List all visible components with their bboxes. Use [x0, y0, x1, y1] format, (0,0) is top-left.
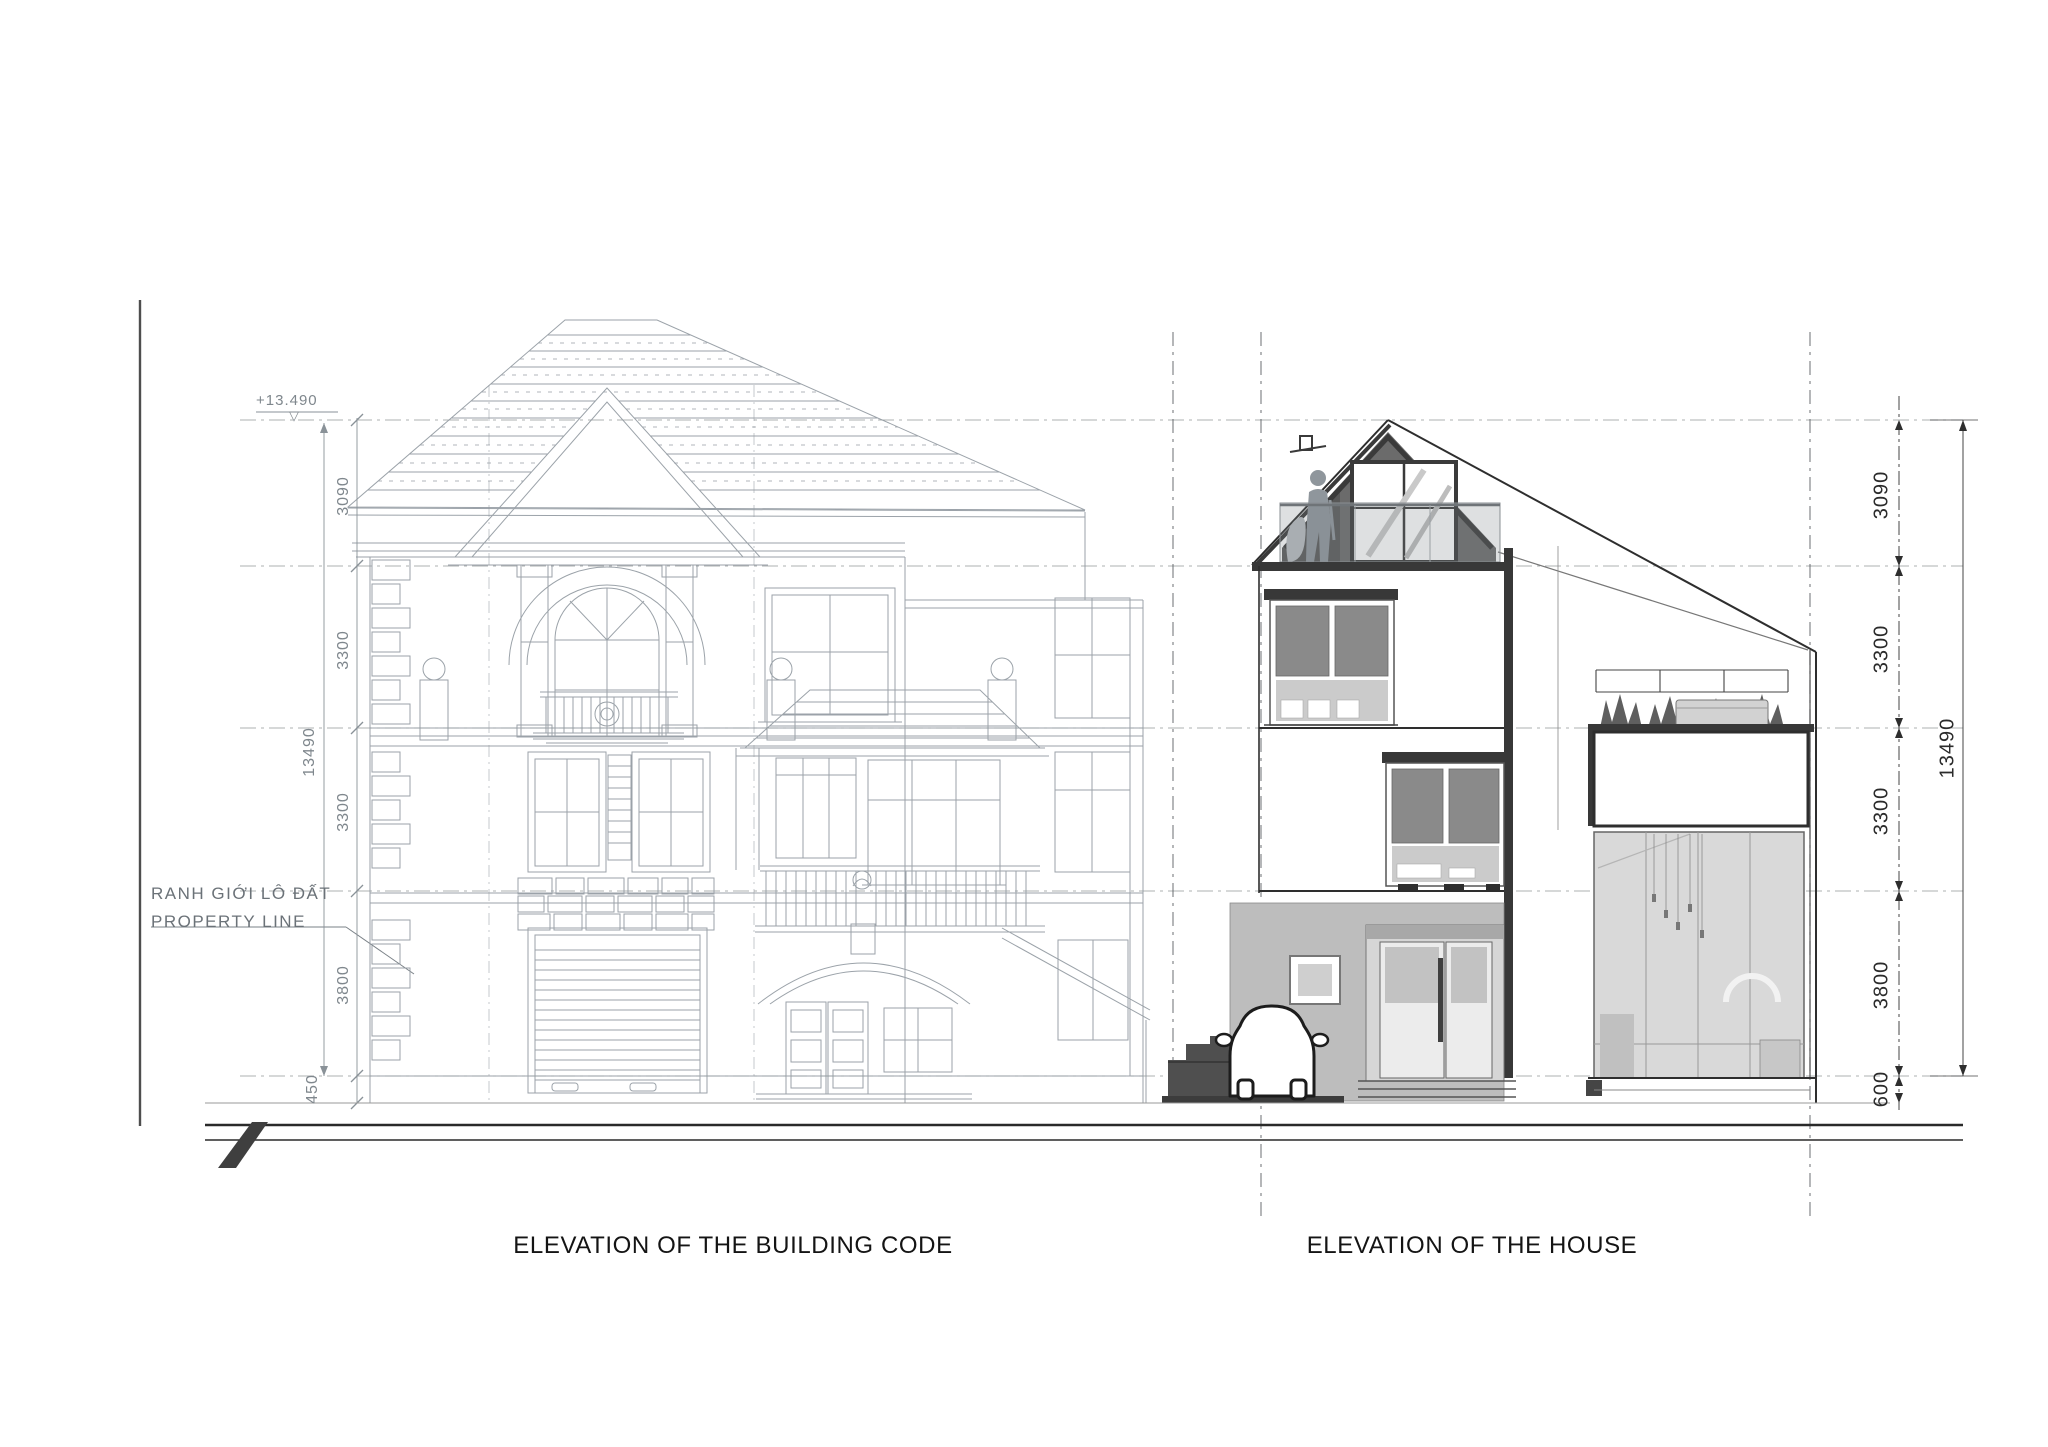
dim-left-overall: 13490	[301, 727, 319, 777]
attic-floor-slab	[1252, 562, 1512, 571]
small-window	[1290, 956, 1340, 1004]
property-line	[140, 300, 414, 1126]
ground-cut-mark	[218, 1122, 268, 1168]
building-code-house	[348, 320, 1150, 1103]
dim-right-overall: 13490	[1937, 718, 1960, 779]
entry-door-modern	[1380, 942, 1492, 1078]
bay-balcony	[755, 866, 1045, 932]
cornice	[348, 515, 1085, 557]
dim-left-450: 450	[304, 1074, 322, 1104]
dim-right-600: 600	[1871, 1071, 1894, 1107]
facade-edges	[370, 557, 1143, 1103]
dim-right-3800: 3800	[1871, 961, 1894, 1010]
right-wing	[905, 512, 1150, 1103]
height-level-label: +13.490	[256, 392, 318, 409]
garage-door	[528, 928, 707, 1093]
terrace-couch	[1676, 700, 1768, 728]
tower-right-wall	[1504, 548, 1513, 1078]
left-drawing-caption: ELEVATION OF THE BUILDING CODE	[513, 1232, 952, 1260]
second-floor-windows	[528, 748, 1130, 885]
terrace-glass-railing	[1280, 503, 1500, 562]
slatted-panel	[608, 755, 631, 860]
modern-house	[1162, 420, 1816, 1103]
third-floor-window	[1264, 589, 1398, 725]
dim-right-3300a: 3300	[1871, 625, 1894, 674]
dim-right-3090: 3090	[1871, 471, 1894, 520]
third-floor-windows	[758, 588, 1130, 728]
property-line-label-en: PROPERTY LINE	[151, 912, 306, 932]
second-floor-window	[1382, 752, 1512, 892]
annex-glass-facade	[1594, 832, 1804, 1078]
dim-left-3800: 3800	[335, 965, 353, 1005]
elevation-linework	[0, 0, 2048, 1447]
parapet-box	[1594, 732, 1808, 826]
dim-right-3300b: 3300	[1871, 787, 1894, 836]
annex	[1558, 546, 1816, 1103]
dim-left-3300b: 3300	[335, 792, 353, 832]
right-drawing-caption: ELEVATION OF THE HOUSE	[1307, 1232, 1638, 1260]
entry-door	[756, 924, 972, 1099]
floor-bands	[370, 728, 1143, 903]
hip-roof	[348, 320, 1085, 511]
terrace-railing	[1596, 670, 1788, 692]
street-ground	[205, 1103, 1963, 1168]
upper-balcony	[533, 692, 684, 739]
quoins	[372, 560, 410, 1060]
stone-parapet	[518, 878, 714, 930]
property-line-label-vi: RANH GIỚI LÔ ĐẤT	[151, 884, 331, 904]
dim-left-3090: 3090	[335, 476, 353, 516]
architectural-elevation-sheet: +13.490 ▽ RANH GIỚI LÔ ĐẤT PROPERTY LINE…	[0, 0, 2048, 1447]
dim-left-3300a: 3300	[335, 630, 353, 670]
level-marker-icon: ▽	[289, 408, 299, 424]
